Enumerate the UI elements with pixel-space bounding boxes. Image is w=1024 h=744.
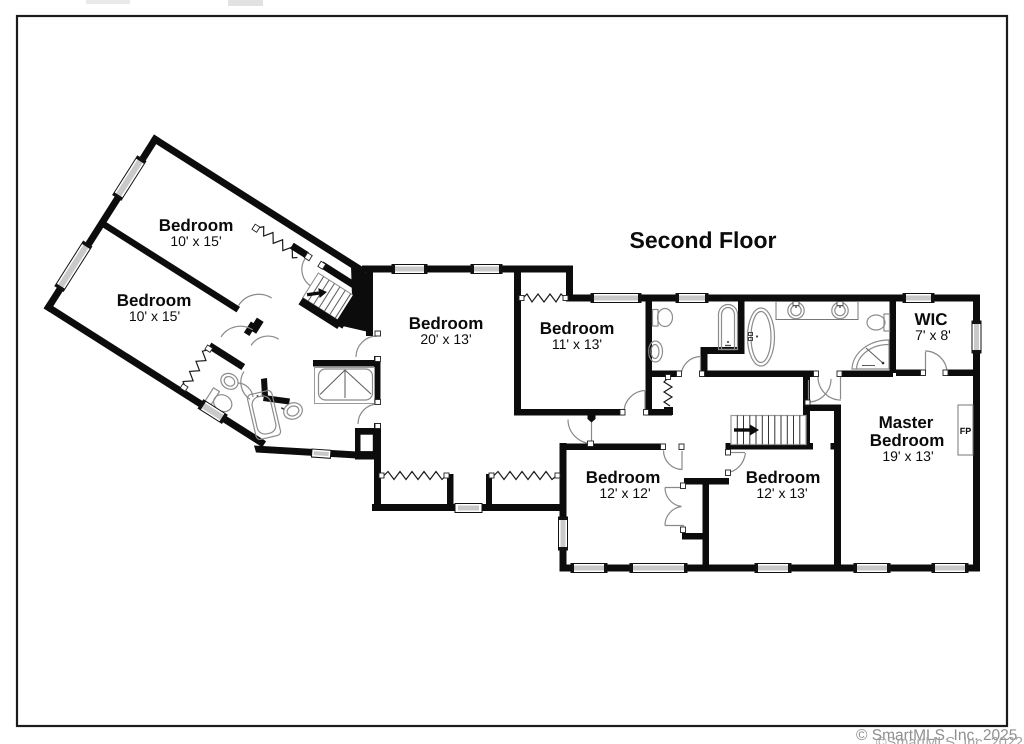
svg-text:10' x 15': 10' x 15'	[170, 233, 221, 249]
svg-text:20' x 13': 20' x 13'	[420, 331, 471, 347]
svg-text:7' x 8': 7' x 8'	[915, 327, 951, 343]
svg-text:©SmartMLS, Inc. 2022: ©SmartMLS, Inc. 2022	[876, 735, 1023, 744]
svg-text:FP: FP	[960, 426, 972, 436]
svg-text:12' x 12': 12' x 12'	[599, 485, 650, 501]
svg-text:10' x 15': 10' x 15'	[129, 308, 180, 324]
svg-text:Second Floor: Second Floor	[630, 227, 777, 253]
svg-text:12' x 13': 12' x 13'	[756, 485, 807, 501]
svg-text:Master: Master	[879, 413, 934, 432]
svg-text:19' x 13': 19' x 13'	[882, 448, 933, 464]
svg-text:11' x 13': 11' x 13'	[552, 336, 602, 352]
